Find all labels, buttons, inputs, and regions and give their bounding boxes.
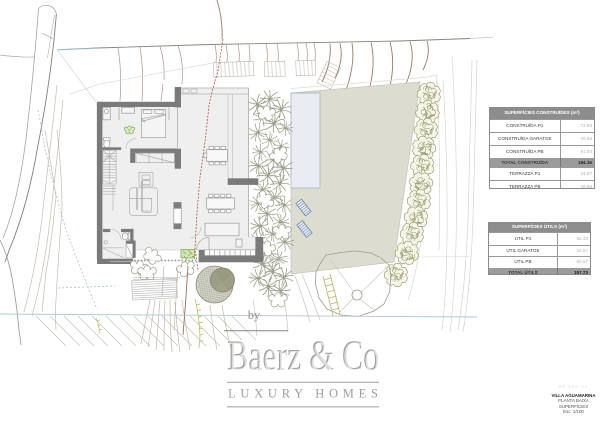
svg-text:by: by [248, 308, 261, 322]
svg-text:LUXURY HOMES: LUXURY HOMES [228, 387, 378, 401]
svg-text:Baerz & Co: Baerz & Co [228, 335, 380, 381]
